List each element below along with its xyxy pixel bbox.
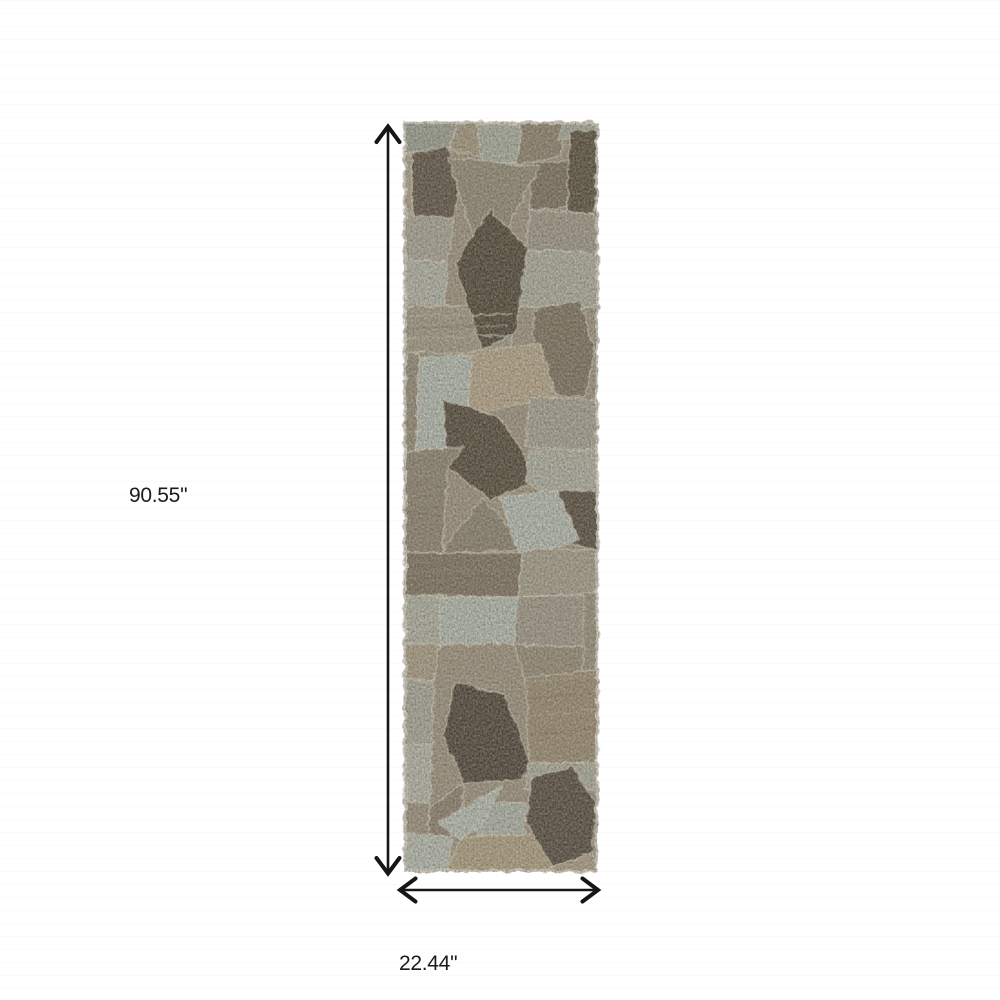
rug-patch [567, 130, 597, 214]
width-dimension-label: 22.44'' [399, 953, 457, 974]
height-dimension-label: 90.55'' [129, 485, 187, 506]
rug-patch [525, 210, 598, 254]
rug-patch [404, 595, 440, 645]
rug-patch [404, 214, 454, 262]
rug-patch [404, 744, 432, 802]
product-dimension-diagram: 90.55'' 22.44'' [0, 0, 1000, 1000]
rug-patch [525, 450, 598, 492]
rug-patch [440, 597, 523, 645]
rug-patch [404, 802, 430, 836]
rug-patch [525, 397, 598, 450]
rug-patch [404, 643, 440, 680]
rug-image [404, 122, 598, 872]
width-dimension-arrow [400, 879, 598, 902]
height-dimension-arrow [377, 127, 400, 874]
rug-patch [404, 680, 434, 744]
rug-patch [478, 124, 522, 166]
rug-patch [404, 260, 448, 308]
rug-patch [404, 553, 523, 597]
rug-patch [516, 250, 598, 308]
rug-patch [514, 595, 587, 647]
rug-patch [518, 550, 598, 597]
rug-patch [404, 834, 452, 870]
